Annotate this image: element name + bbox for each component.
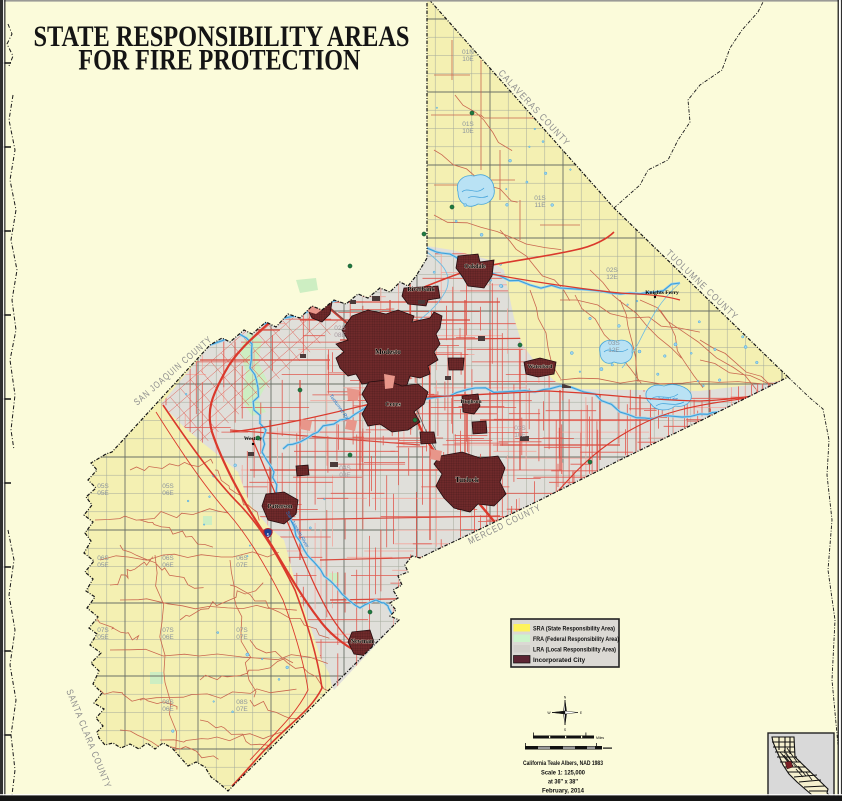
svg-text:Riverbank: Riverbank xyxy=(407,287,435,293)
svg-text:06S07E: 06S07E xyxy=(236,555,248,569)
svg-text:at 36″ x 38″: at 36″ x 38″ xyxy=(548,780,578,786)
svg-text:February, 2014: February, 2014 xyxy=(542,789,585,795)
svg-text:Turlock: Turlock xyxy=(455,476,479,484)
svg-text:01N10E: 01N10E xyxy=(462,49,474,63)
svg-text:LRA (Local Responsibility Area: LRA (Local Responsibility Area) xyxy=(533,646,616,653)
svg-text:06S06E: 06S06E xyxy=(162,555,174,569)
svg-text:Scale 1: 125,000: Scale 1: 125,000 xyxy=(541,771,586,777)
svg-text:01S10E: 01S10E xyxy=(462,121,474,135)
svg-text:02S12E: 02S12E xyxy=(606,267,618,281)
svg-text:08S06E: 08S06E xyxy=(162,699,174,713)
svg-text:5: 5 xyxy=(267,533,270,539)
svg-text:California Teale Albers, NAD 1: California Teale Albers, NAD 1983 xyxy=(523,761,604,767)
svg-text:05S05E: 05S05E xyxy=(97,483,109,497)
svg-text:08S07E: 08S07E xyxy=(236,699,248,713)
svg-text:Patterson: Patterson xyxy=(268,504,293,510)
svg-text:Waterford: Waterford xyxy=(528,364,553,370)
svg-text:07S06E: 07S06E xyxy=(162,627,174,641)
svg-text:FRA (Federal Responsibility Ar: FRA (Federal Responsibility Area) xyxy=(533,636,619,643)
svg-text:FOR FIRE PROTECTION: FOR FIRE PROTECTION xyxy=(78,44,360,76)
svg-text:03S12E: 03S12E xyxy=(608,340,620,354)
svg-text:Miles: Miles xyxy=(596,736,604,740)
svg-text:Oakdale: Oakdale xyxy=(464,264,486,270)
svg-text:05S06E: 05S06E xyxy=(162,483,174,497)
svg-text:Modesto: Modesto xyxy=(375,348,401,356)
svg-text:07S05E: 07S05E xyxy=(97,627,109,641)
svg-text:01S11E: 01S11E xyxy=(534,195,546,209)
svg-text:03S10E: 03S10E xyxy=(514,425,526,439)
svg-text:Ceres: Ceres xyxy=(385,401,401,408)
svg-text:Knights Ferry: Knights Ferry xyxy=(645,290,679,296)
svg-text:SRA (State Responsibility Area: SRA (State Responsibility Area) xyxy=(533,625,615,632)
svg-text:07S07E: 07S07E xyxy=(236,627,248,641)
svg-text:06S05E: 06S05E xyxy=(97,555,109,569)
svg-text:Incorporated City: Incorporated City xyxy=(533,657,586,664)
svg-text:04S08E: 04S08E xyxy=(339,465,351,479)
svg-text:02S08E: 02S08E xyxy=(334,325,346,339)
svg-text:Hughson: Hughson xyxy=(460,399,481,405)
svg-text:Newman: Newman xyxy=(351,639,374,645)
